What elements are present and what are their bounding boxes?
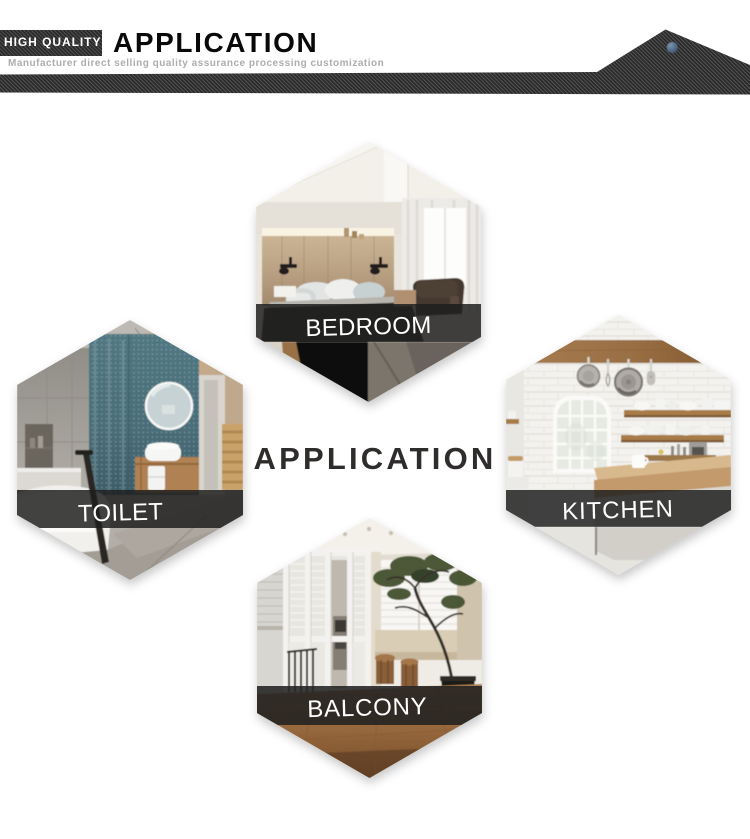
svg-text:BALCONY: BALCONY bbox=[307, 693, 428, 723]
svg-text:BEDROOM: BEDROOM bbox=[305, 312, 432, 342]
svg-text:TOILET: TOILET bbox=[78, 498, 164, 527]
svg-text:KITCHEN: KITCHEN bbox=[562, 496, 674, 526]
